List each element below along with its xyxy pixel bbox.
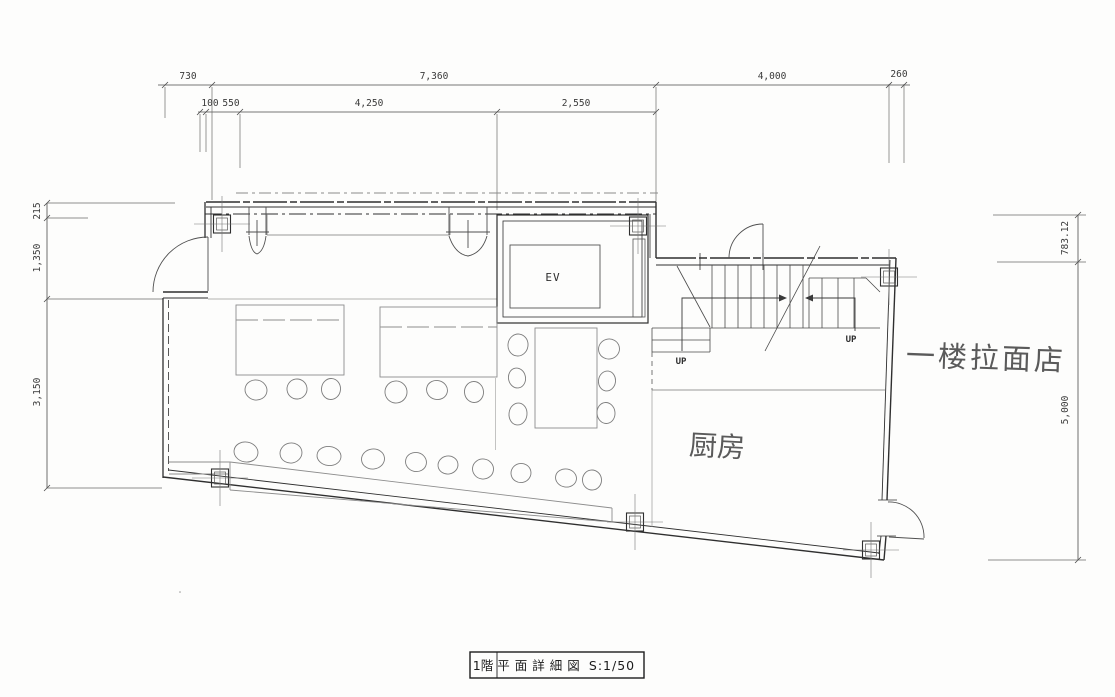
title-floor: 1階 [473, 658, 494, 673]
title-name: 平面詳細図 [497, 658, 585, 673]
structural-columns [192, 196, 917, 578]
dim-left-215: 215 [32, 202, 43, 219]
label-up-right: UP [846, 335, 857, 345]
title-scale: S:1/50 [589, 658, 635, 673]
stair-up-arrow-right [805, 295, 855, 332]
stair-landing [809, 278, 880, 328]
stair-first-steps [652, 328, 710, 352]
label-kitchen: 厨房 [688, 429, 746, 465]
column [607, 494, 663, 550]
floor-plan-drawing: 730 7,360 4,000 260 100 550 4,250 2,550 … [0, 0, 1115, 697]
column [192, 450, 248, 506]
dim-top-2550: 2,550 [562, 98, 591, 109]
dim-top-4000: 4,000 [758, 71, 787, 82]
entrance-door-left [153, 237, 208, 292]
storefront-door-a [246, 207, 269, 254]
dim-extension-lines-left [47, 203, 175, 488]
dim-top-550: 550 [222, 98, 239, 109]
column [861, 249, 917, 305]
floor-plan-sheet: 730 7,360 4,000 260 100 550 4,250 2,550 … [0, 0, 1115, 697]
stools [243, 333, 621, 426]
kitchen-area: 厨房 [652, 352, 885, 527]
kitchen-service-door [888, 502, 924, 539]
column [843, 522, 899, 578]
dim-top-7360: 7,360 [420, 71, 449, 82]
stairs: UP UP [652, 246, 880, 367]
dimension-left: 215 1,350 3,150 [32, 200, 175, 491]
dim-top-100: 100 [201, 98, 218, 109]
stair-door [729, 224, 763, 258]
title-block: 1階 平面詳細図 S:1/50 [470, 652, 644, 678]
dim-left-1350: 1,350 [32, 243, 43, 272]
table-2 [380, 307, 497, 377]
dining-furniture [236, 305, 622, 450]
ev-rail [633, 239, 645, 317]
dimension-top: 730 7,360 4,000 260 100 550 4,250 2,550 [158, 69, 910, 212]
dim-extension-lines-right [988, 215, 1086, 560]
ev-shaft: EV [497, 215, 648, 323]
scan-speck [179, 591, 181, 593]
column [610, 198, 666, 254]
counter-stools [232, 440, 602, 491]
dimension-right: 783.12 5,000 [988, 212, 1086, 563]
stair-treads [712, 265, 803, 328]
label-up-left: UP [676, 357, 687, 367]
stair-up-arrow-left [682, 295, 787, 352]
dim-left-3150: 3,150 [32, 377, 43, 406]
table-1 [236, 305, 344, 375]
outer-walls [163, 193, 897, 560]
dim-right-783: 783.12 [1060, 221, 1071, 255]
dim-top-260: 260 [890, 69, 907, 80]
dim-top-4250: 4,250 [355, 98, 384, 109]
label-ev: EV [545, 271, 560, 284]
table-long [535, 328, 597, 428]
note-ramen-shop: 一楼拉面店 [905, 338, 1066, 378]
counter [169, 440, 612, 522]
column [194, 196, 250, 252]
dim-right-5000: 5,000 [1060, 395, 1071, 424]
dim-top-730: 730 [179, 71, 196, 82]
